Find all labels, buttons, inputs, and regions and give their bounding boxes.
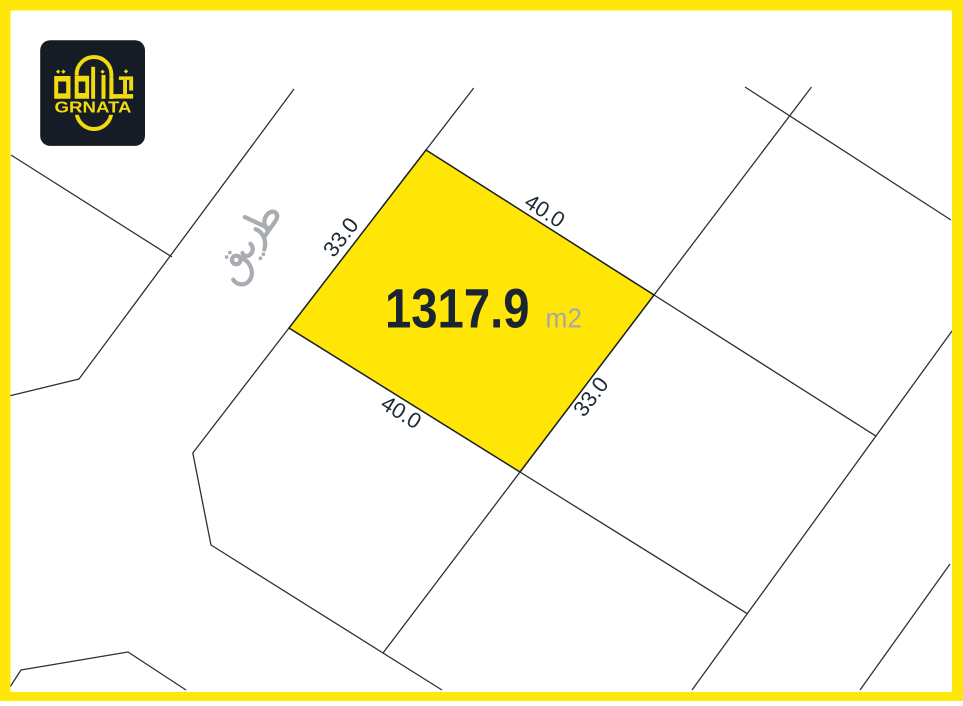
svg-text:1317.9: 1317.9 <box>385 277 530 340</box>
svg-text:GRNATA: GRNATA <box>55 100 132 117</box>
svg-text:m2: m2 <box>546 303 583 334</box>
